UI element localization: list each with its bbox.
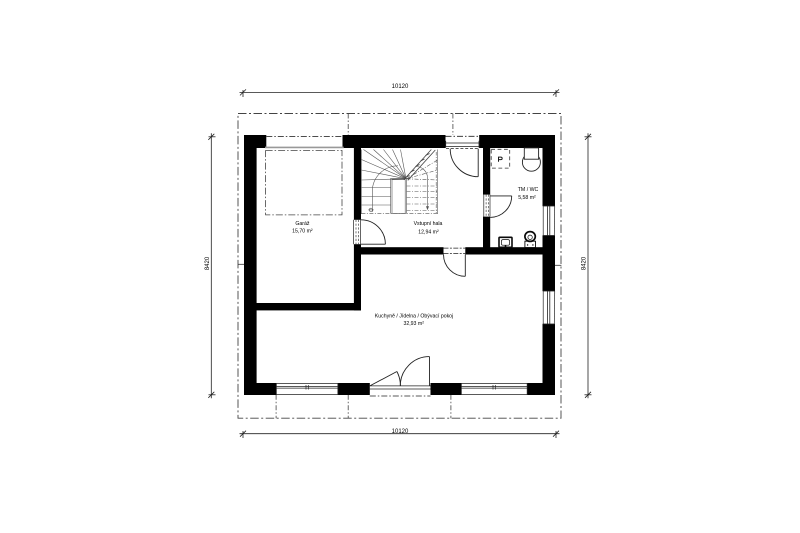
svg-text:10120: 10120 [392,84,409,90]
svg-text:Vstupní hala: Vstupní hala [414,221,443,227]
svg-text:32,93 m²: 32,93 m² [403,321,424,327]
svg-text:Garáž: Garáž [295,221,310,227]
svg-text:5,58 m²: 5,58 m² [518,195,536,201]
svg-text:10120: 10120 [392,429,409,435]
svg-text:8420: 8420 [581,256,587,270]
svg-text:8420: 8420 [205,256,211,270]
svg-text:TM / WC: TM / WC [518,187,539,193]
svg-text:Kuchyně / Jídelna / Obývací po: Kuchyně / Jídelna / Obývací pokoj [375,314,453,320]
svg-text:15,70 m²: 15,70 m² [292,228,313,234]
svg-text:12,94 m²: 12,94 m² [418,230,439,236]
